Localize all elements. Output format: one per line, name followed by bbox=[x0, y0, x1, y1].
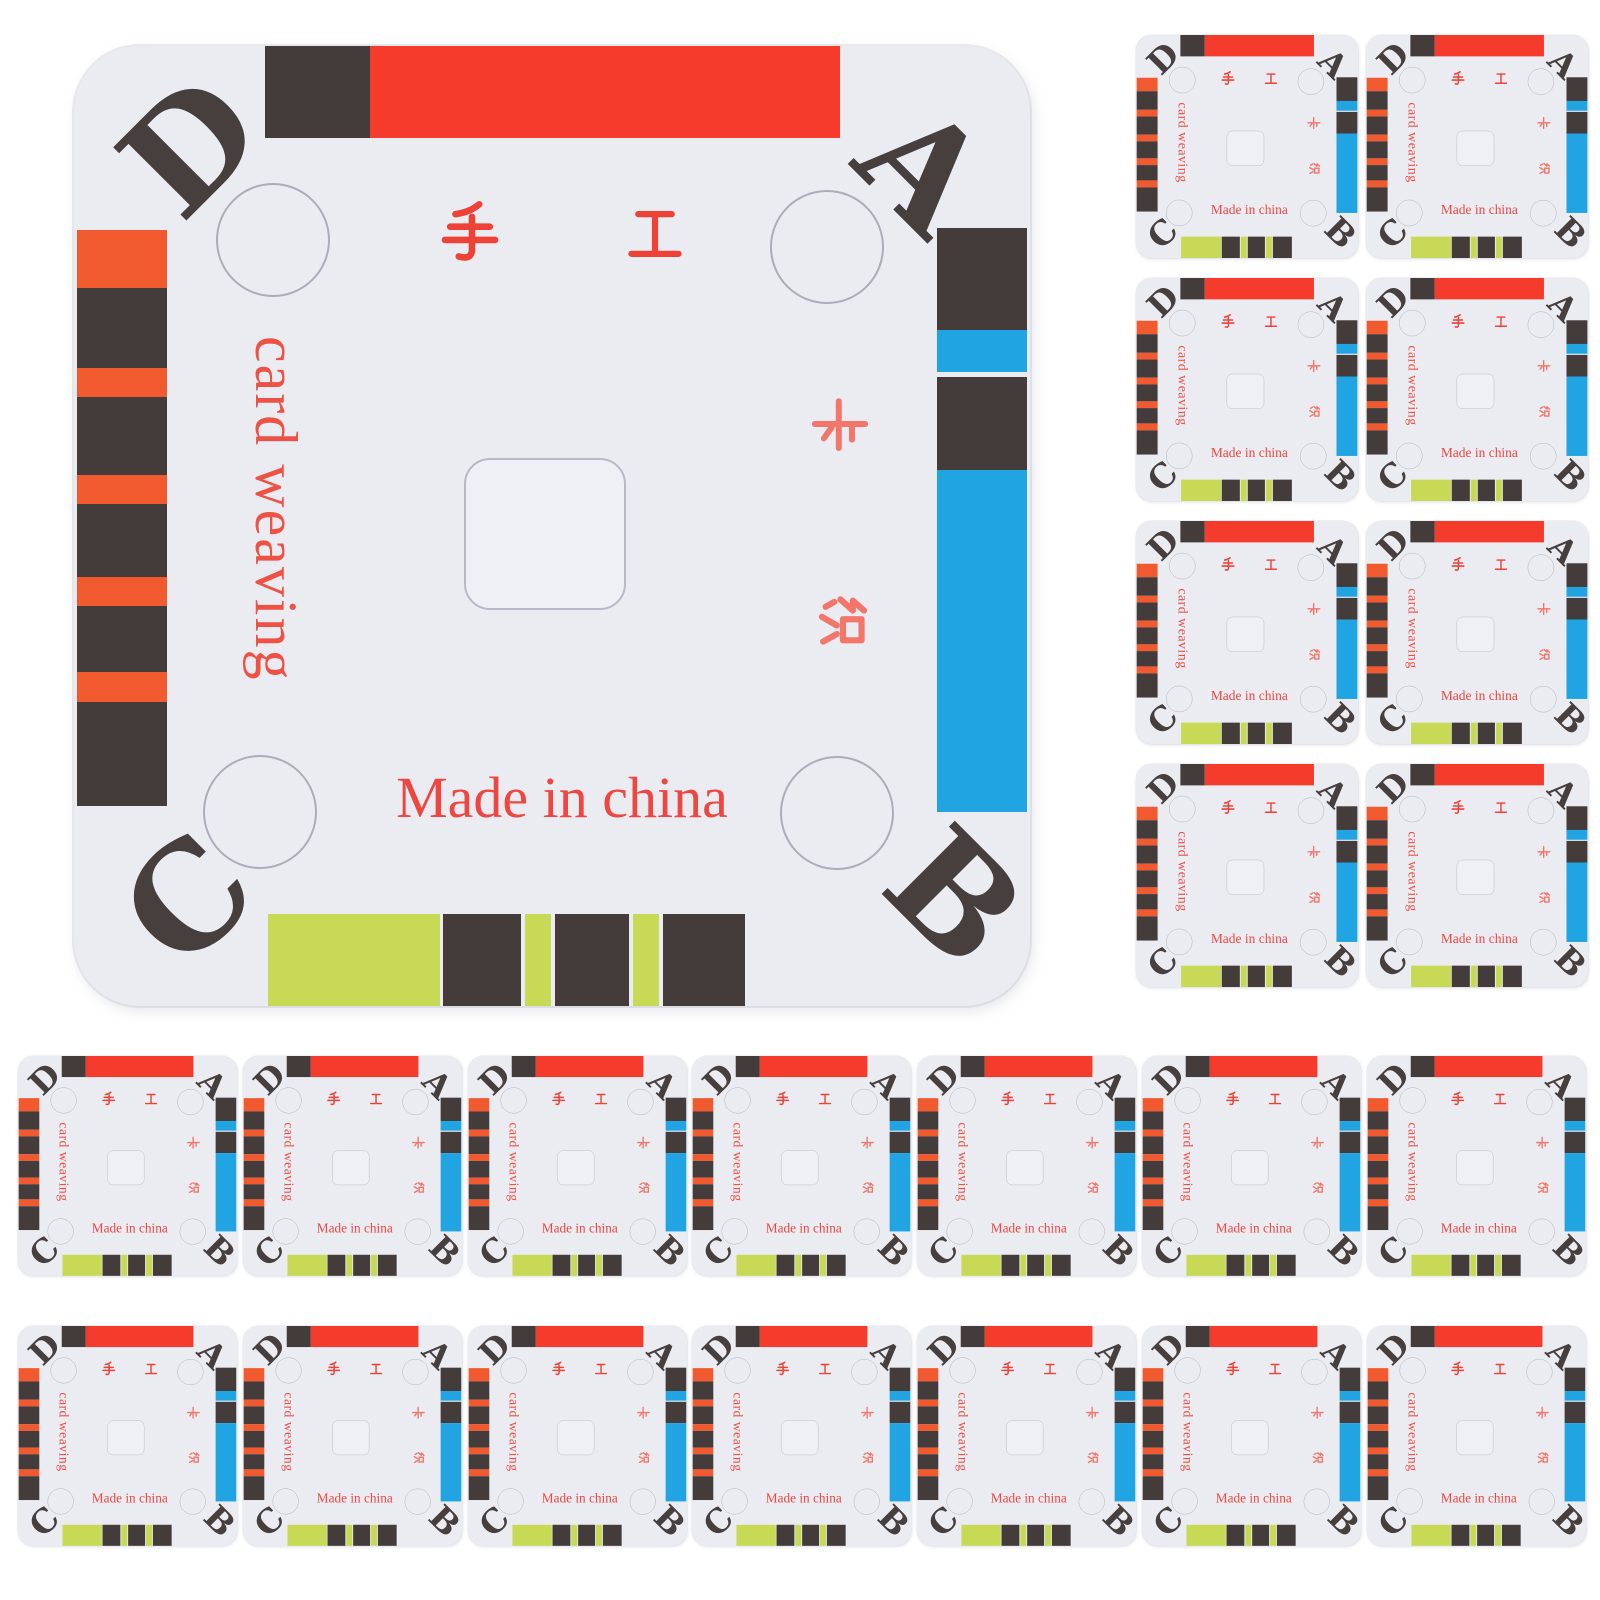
band-segment-dark bbox=[1478, 237, 1495, 258]
punch-hole-bottom-right bbox=[1530, 200, 1556, 226]
band-segment-dark bbox=[1336, 320, 1357, 344]
punch-hole-bottom-right bbox=[1300, 929, 1326, 955]
punch-hole-top-right bbox=[1076, 1359, 1102, 1385]
hanzi-zhi-icon bbox=[411, 1180, 425, 1194]
right-edge-band bbox=[1565, 1368, 1586, 1502]
weaving-card: D A C B bbox=[917, 1056, 1136, 1276]
left-edge-band bbox=[1137, 321, 1158, 455]
band-segment-green bbox=[1181, 480, 1221, 501]
right-edge-band bbox=[666, 1098, 687, 1232]
hanzi-ka-icon bbox=[861, 1406, 875, 1420]
band-segment-orange bbox=[918, 1178, 939, 1185]
hanzi-ka-icon bbox=[1086, 1136, 1100, 1150]
hanzi-zhi-icon bbox=[636, 1450, 650, 1464]
top-edge-band bbox=[736, 1056, 868, 1077]
band-segment-orange bbox=[19, 1199, 40, 1206]
punch-hole-top-left bbox=[1169, 67, 1195, 93]
band-segment-dark bbox=[1137, 820, 1158, 839]
right-edge-band bbox=[890, 1098, 911, 1232]
band-segment-orange bbox=[693, 1098, 714, 1111]
hanzi-ka-icon bbox=[810, 394, 870, 454]
band-segment-orange bbox=[1368, 1469, 1389, 1476]
band-segment-orange bbox=[244, 1424, 265, 1431]
band-segment-dark bbox=[244, 1431, 265, 1448]
band-segment-orange bbox=[1367, 839, 1388, 846]
hanzi-gong-icon bbox=[1043, 1362, 1057, 1376]
punch-hole-bottom-right bbox=[405, 1219, 431, 1245]
band-segment-blue bbox=[1115, 1121, 1136, 1131]
center-square-cutout bbox=[557, 1150, 594, 1185]
band-segment-orange bbox=[1137, 887, 1158, 894]
left-edge-band bbox=[1368, 1368, 1389, 1500]
card-weaving-label: card weaving bbox=[507, 1392, 522, 1484]
card-weaving-label: card weaving bbox=[282, 1122, 297, 1214]
band-segment-orange bbox=[77, 230, 167, 288]
band-segment-dark bbox=[1566, 77, 1587, 101]
bottom-edge-band bbox=[1411, 1525, 1520, 1546]
punch-hole-bottom-left bbox=[947, 1218, 973, 1244]
band-segment-dark bbox=[1452, 480, 1470, 501]
made-in-china-label: Made in china bbox=[1208, 1220, 1300, 1235]
band-segment-orange bbox=[1368, 1178, 1389, 1185]
band-segment-dark bbox=[1137, 916, 1158, 940]
card-weaving-label: card weaving bbox=[1176, 102, 1191, 195]
hanzi-gong-icon bbox=[818, 1362, 832, 1376]
center-square-cutout bbox=[557, 1420, 594, 1455]
hanzi-ka-icon bbox=[637, 1406, 651, 1420]
band-segment-green bbox=[961, 1525, 1000, 1546]
band-segment-dark bbox=[103, 1255, 121, 1276]
band-segment-green bbox=[1471, 966, 1477, 987]
band-segment-dark bbox=[19, 1476, 40, 1500]
band-segment-green bbox=[1470, 1525, 1476, 1546]
punch-hole-bottom-left bbox=[1396, 929, 1422, 955]
hanzi-shou-icon bbox=[1220, 71, 1235, 86]
band-segment-dark bbox=[441, 1368, 462, 1391]
band-segment-orange bbox=[1367, 596, 1388, 603]
band-segment-dark bbox=[244, 1381, 265, 1399]
band-segment-blue bbox=[1565, 1391, 1586, 1401]
weaving-card: D A C B bbox=[468, 1326, 687, 1546]
band-segment-blue bbox=[1565, 1423, 1586, 1501]
band-segment-dark bbox=[378, 1525, 397, 1546]
band-segment-dark bbox=[1566, 841, 1587, 863]
band-segment-orange bbox=[918, 1448, 939, 1455]
band-segment-green bbox=[1241, 723, 1247, 744]
band-segment-blue bbox=[1115, 1153, 1136, 1231]
band-segment-green bbox=[795, 1255, 801, 1276]
punch-hole-bottom-right bbox=[630, 1219, 656, 1245]
band-segment-orange bbox=[469, 1154, 490, 1161]
bottom-edge-band bbox=[1186, 1255, 1295, 1276]
band-segment-dark bbox=[1336, 563, 1357, 587]
band-segment-dark bbox=[1180, 35, 1204, 56]
card-weaving-label: card weaving bbox=[956, 1392, 971, 1484]
band-segment-dark bbox=[1252, 1525, 1269, 1546]
hanzi-ka-icon bbox=[1311, 1406, 1325, 1420]
band-segment-dark bbox=[1367, 894, 1388, 909]
bottom-edge-band bbox=[512, 1255, 621, 1276]
band-segment-dark bbox=[19, 1136, 40, 1154]
punch-hole-bottom-left bbox=[273, 1218, 299, 1244]
band-segment-orange bbox=[1367, 180, 1388, 187]
punch-hole-bottom-right bbox=[1530, 929, 1556, 955]
band-segment-blue bbox=[1115, 1391, 1136, 1401]
band-segment-dark bbox=[918, 1206, 939, 1230]
band-segment-dark bbox=[1566, 598, 1587, 620]
band-segment-orange bbox=[693, 1469, 714, 1476]
band-segment-dark bbox=[1565, 1098, 1586, 1121]
band-segment-dark bbox=[512, 1326, 536, 1347]
band-segment-dark bbox=[441, 1402, 462, 1423]
band-segment-orange bbox=[1367, 401, 1388, 408]
punch-hole-top-right bbox=[851, 1359, 877, 1385]
bottom-edge-band bbox=[287, 1255, 396, 1276]
band-segment-green bbox=[121, 1255, 127, 1276]
band-segment-blue bbox=[1340, 1423, 1361, 1501]
punch-hole-top-left bbox=[1169, 553, 1195, 579]
bottom-edge-band bbox=[736, 1255, 845, 1276]
band-segment-dark bbox=[1367, 408, 1388, 423]
band-segment-dark bbox=[1336, 806, 1357, 830]
band-segment-orange bbox=[1137, 909, 1158, 916]
band-segment-dark bbox=[1478, 966, 1495, 987]
band-segment-orange bbox=[1137, 644, 1158, 651]
hanzi-shou-icon bbox=[101, 1091, 116, 1106]
band-segment-red bbox=[1435, 521, 1544, 542]
band-segment-orange bbox=[693, 1400, 714, 1407]
band-segment-blue bbox=[666, 1391, 687, 1401]
band-segment-orange bbox=[693, 1178, 714, 1185]
hanzi-gong-icon bbox=[1494, 314, 1508, 328]
band-segment-green bbox=[146, 1525, 152, 1546]
bottom-edge-band bbox=[1181, 966, 1292, 987]
punch-hole-top-left bbox=[501, 1087, 527, 1113]
band-segment-dark bbox=[1477, 1525, 1494, 1546]
band-segment-dark bbox=[1137, 870, 1158, 887]
band-segment-dark bbox=[1137, 673, 1158, 697]
band-segment-green bbox=[1186, 1525, 1225, 1546]
punch-hole-top-left bbox=[216, 183, 330, 297]
band-segment-dark bbox=[1222, 723, 1240, 744]
band-segment-orange bbox=[918, 1154, 939, 1161]
punch-hole-top-right bbox=[1528, 311, 1554, 337]
band-segment-dark bbox=[441, 1098, 462, 1121]
weaving-card: D A C B bbox=[1367, 1056, 1586, 1276]
punch-hole-top-left bbox=[51, 1087, 77, 1113]
hanzi-gong-icon bbox=[144, 1362, 158, 1376]
punch-hole-bottom-right bbox=[1300, 443, 1326, 469]
band-segment-dark bbox=[1137, 627, 1158, 644]
weaving-card: D A C B bbox=[243, 1056, 462, 1276]
center-square-cutout bbox=[107, 1150, 144, 1185]
top-edge-band bbox=[1186, 1056, 1318, 1077]
band-segment-dark bbox=[244, 1476, 265, 1500]
band-segment-dark bbox=[77, 288, 167, 368]
weaving-card: D A C B bbox=[1142, 1056, 1361, 1276]
band-segment-orange bbox=[77, 368, 167, 397]
left-edge-band bbox=[1137, 807, 1158, 941]
weaving-card: D A C B bbox=[1136, 764, 1358, 987]
hanzi-zhi-icon bbox=[1085, 1180, 1099, 1194]
top-edge-band bbox=[1180, 278, 1314, 299]
band-segment-dark bbox=[244, 1184, 265, 1199]
punch-hole-bottom-right bbox=[780, 756, 894, 870]
hanzi-zhi-icon bbox=[186, 1180, 200, 1194]
band-segment-orange bbox=[1137, 423, 1158, 430]
band-segment-dark bbox=[1143, 1161, 1164, 1178]
band-segment-orange bbox=[1367, 158, 1388, 165]
punch-hole-bottom-left bbox=[1397, 1488, 1423, 1514]
band-segment-dark bbox=[1248, 966, 1265, 987]
center-square-cutout bbox=[1457, 860, 1495, 895]
band-segment-green bbox=[1471, 480, 1477, 501]
band-segment-dark bbox=[1137, 577, 1158, 596]
punch-hole-top-right bbox=[627, 1089, 653, 1115]
bottom-edge-band bbox=[1181, 237, 1292, 258]
right-edge-band bbox=[1336, 77, 1357, 213]
hanzi-ka-icon bbox=[637, 1136, 651, 1150]
top-edge-band bbox=[1186, 1326, 1318, 1347]
band-segment-green bbox=[1495, 1525, 1501, 1546]
band-segment-dark bbox=[918, 1454, 939, 1469]
band-segment-dark bbox=[1411, 1326, 1435, 1347]
hanzi-gong-icon bbox=[369, 1092, 383, 1106]
right-edge-band bbox=[216, 1368, 237, 1502]
band-segment-orange bbox=[1143, 1098, 1164, 1111]
card-weaving-label: card weaving bbox=[1176, 588, 1191, 681]
band-segment-green bbox=[146, 1255, 152, 1276]
band-segment-orange bbox=[1137, 621, 1158, 628]
band-segment-green bbox=[287, 1525, 326, 1546]
band-segment-dark bbox=[1137, 408, 1158, 423]
band-segment-orange bbox=[244, 1178, 265, 1185]
band-segment-red bbox=[1435, 1326, 1543, 1347]
band-segment-dark bbox=[693, 1111, 714, 1129]
band-segment-dark bbox=[1143, 1136, 1164, 1154]
band-segment-dark bbox=[553, 1525, 571, 1546]
center-square-cutout bbox=[1227, 374, 1265, 409]
punch-hole-top-left bbox=[725, 1357, 751, 1383]
punch-hole-top-left bbox=[1175, 1087, 1201, 1113]
band-segment-green bbox=[1411, 723, 1451, 744]
band-segment-green bbox=[121, 1525, 127, 1546]
card-weaving-label: card weaving bbox=[1181, 1122, 1196, 1214]
made-in-china-label: Made in china bbox=[1203, 931, 1296, 947]
band-segment-dark bbox=[1565, 1402, 1586, 1423]
band-segment-orange bbox=[1143, 1448, 1164, 1455]
hanzi-zhi-icon bbox=[636, 1180, 650, 1194]
band-segment-blue bbox=[1566, 133, 1587, 212]
punch-hole-bottom-left bbox=[1397, 1218, 1423, 1244]
left-edge-band bbox=[1367, 564, 1388, 698]
band-segment-orange bbox=[1137, 864, 1158, 871]
punch-hole-bottom-left bbox=[722, 1218, 748, 1244]
hanzi-ka-icon bbox=[1536, 1136, 1550, 1150]
right-edge-band bbox=[666, 1368, 687, 1502]
band-segment-dark bbox=[353, 1525, 370, 1546]
band-segment-dark bbox=[666, 1098, 687, 1121]
band-segment-dark bbox=[1336, 112, 1357, 134]
band-segment-green bbox=[1496, 237, 1502, 258]
band-segment-orange bbox=[918, 1098, 939, 1111]
hanzi-shou-icon bbox=[1450, 557, 1465, 572]
band-segment-green bbox=[571, 1255, 577, 1276]
hanzi-shou-icon bbox=[1000, 1091, 1015, 1106]
punch-hole-bottom-right bbox=[1304, 1489, 1330, 1515]
band-segment-blue bbox=[1336, 619, 1357, 698]
band-segment-orange bbox=[1137, 564, 1158, 577]
hanzi-ka-icon bbox=[1537, 602, 1551, 616]
weaving-card: D A C B bbox=[1136, 278, 1358, 501]
band-segment-green bbox=[571, 1525, 577, 1546]
band-segment-dark bbox=[265, 46, 370, 138]
band-segment-dark bbox=[1248, 480, 1265, 501]
card-weaving-label: card weaving bbox=[731, 1122, 746, 1214]
band-segment-dark bbox=[1248, 723, 1265, 744]
hanzi-gong-icon bbox=[1264, 800, 1278, 814]
punch-hole-bottom-right bbox=[854, 1489, 880, 1515]
band-segment-red bbox=[985, 1326, 1093, 1347]
band-segment-dark bbox=[1368, 1161, 1389, 1178]
band-segment-dark bbox=[244, 1136, 265, 1154]
band-segment-dark bbox=[1368, 1111, 1389, 1129]
band-segment-dark bbox=[827, 1255, 846, 1276]
band-segment-dark bbox=[216, 1132, 237, 1153]
punch-hole-top-right bbox=[1298, 797, 1324, 823]
band-segment-blue bbox=[890, 1423, 911, 1501]
top-edge-band bbox=[1410, 764, 1544, 785]
punch-hole-bottom-right bbox=[1300, 200, 1326, 226]
band-segment-dark bbox=[1186, 1056, 1210, 1077]
hanzi-zhi-icon bbox=[1306, 647, 1320, 661]
band-segment-dark bbox=[216, 1368, 237, 1391]
center-square-cutout bbox=[332, 1150, 369, 1185]
band-segment-dark bbox=[1143, 1184, 1164, 1199]
band-segment-dark bbox=[1115, 1368, 1136, 1391]
punch-hole-top-right bbox=[1528, 68, 1554, 94]
band-segment-orange bbox=[1137, 78, 1158, 91]
band-segment-green bbox=[1496, 723, 1502, 744]
band-segment-orange bbox=[19, 1130, 40, 1137]
band-segment-green bbox=[371, 1255, 377, 1276]
punch-hole-top-left bbox=[950, 1357, 976, 1383]
band-segment-dark bbox=[1477, 1255, 1494, 1276]
hanzi-ka-icon bbox=[861, 1136, 875, 1150]
band-segment-dark bbox=[1227, 1525, 1245, 1546]
band-segment-orange bbox=[1137, 353, 1158, 360]
punch-hole-top-left bbox=[1399, 67, 1425, 93]
right-edge-band bbox=[1340, 1098, 1361, 1232]
band-segment-dark bbox=[890, 1132, 911, 1153]
band-segment-dark bbox=[244, 1161, 265, 1178]
band-segment-dark bbox=[1368, 1476, 1389, 1500]
band-segment-dark bbox=[1137, 651, 1158, 666]
band-segment-orange bbox=[244, 1130, 265, 1137]
band-segment-orange bbox=[1368, 1448, 1389, 1455]
band-segment-green bbox=[525, 914, 551, 1006]
made-in-china-label: Made in china bbox=[309, 1490, 401, 1505]
weaving-card: D A C B bbox=[917, 1326, 1136, 1546]
band-segment-dark bbox=[1137, 165, 1158, 180]
band-segment-dark bbox=[1566, 355, 1587, 377]
hanzi-gong-icon bbox=[1493, 1092, 1507, 1106]
product-photo-stage: D A C B bbox=[0, 0, 1600, 1600]
hanzi-gong-icon bbox=[1043, 1092, 1057, 1106]
hanzi-shou-icon bbox=[775, 1361, 790, 1376]
right-edge-band bbox=[1115, 1098, 1136, 1232]
band-segment-dark bbox=[1277, 1255, 1296, 1276]
band-segment-green bbox=[1496, 480, 1502, 501]
band-segment-orange bbox=[77, 672, 167, 702]
band-segment-dark bbox=[1277, 1525, 1296, 1546]
band-segment-dark bbox=[1368, 1406, 1389, 1424]
band-segment-dark bbox=[1137, 430, 1158, 454]
hanzi-gong-icon bbox=[1264, 314, 1278, 328]
hanzi-zhi-icon bbox=[1310, 1180, 1324, 1194]
band-segment-orange bbox=[1368, 1154, 1389, 1161]
band-segment-orange bbox=[1143, 1178, 1164, 1185]
punch-hole-top-right bbox=[1298, 68, 1324, 94]
band-segment-dark bbox=[1143, 1111, 1164, 1129]
band-segment-red bbox=[1205, 521, 1314, 542]
band-segment-orange bbox=[1143, 1469, 1164, 1476]
weaving-card: D A C B bbox=[1366, 278, 1588, 501]
band-segment-dark bbox=[62, 1056, 86, 1077]
band-segment-dark bbox=[19, 1161, 40, 1178]
center-square-cutout bbox=[1456, 1150, 1493, 1185]
band-segment-red bbox=[86, 1056, 194, 1077]
punch-hole-bottom-right bbox=[180, 1219, 206, 1245]
band-segment-green bbox=[633, 914, 659, 1006]
band-segment-dark bbox=[890, 1402, 911, 1423]
weaving-card: D A C B bbox=[1366, 521, 1588, 744]
hanzi-gong-icon bbox=[1268, 1092, 1282, 1106]
hanzi-zhi-icon bbox=[1536, 161, 1550, 175]
punch-hole-top-left bbox=[1399, 553, 1425, 579]
hanzi-shou-icon bbox=[1225, 1091, 1240, 1106]
right-edge-band bbox=[216, 1098, 237, 1232]
left-edge-band bbox=[1143, 1098, 1164, 1230]
band-segment-orange bbox=[1368, 1098, 1389, 1111]
center-square-cutout bbox=[1006, 1420, 1043, 1455]
center-square-cutout bbox=[1227, 860, 1265, 895]
made-in-china-label: Made in china bbox=[309, 1220, 401, 1235]
band-segment-dark bbox=[1115, 1098, 1136, 1121]
band-segment-dark bbox=[1410, 278, 1434, 299]
band-segment-dark bbox=[693, 1161, 714, 1178]
band-segment-green bbox=[1045, 1255, 1051, 1276]
band-segment-green bbox=[596, 1525, 602, 1546]
punch-hole-top-right bbox=[1298, 311, 1324, 337]
band-segment-dark bbox=[353, 1255, 370, 1276]
band-segment-dark bbox=[328, 1525, 346, 1546]
punch-hole-bottom-right bbox=[854, 1219, 880, 1245]
band-segment-dark bbox=[1273, 480, 1292, 501]
band-segment-dark bbox=[1367, 187, 1388, 211]
punch-hole-bottom-left bbox=[1166, 929, 1192, 955]
band-segment-orange bbox=[1137, 401, 1158, 408]
band-segment-orange bbox=[693, 1154, 714, 1161]
hanzi-shou-icon bbox=[551, 1091, 566, 1106]
hanzi-zhi-icon bbox=[807, 587, 869, 649]
band-segment-dark bbox=[1180, 521, 1204, 542]
hanzi-ka-icon bbox=[1307, 359, 1321, 373]
band-segment-dark bbox=[287, 1326, 311, 1347]
left-edge-band bbox=[1367, 78, 1388, 212]
hanzi-shou-icon bbox=[1225, 1361, 1240, 1376]
band-segment-dark bbox=[1143, 1381, 1164, 1399]
